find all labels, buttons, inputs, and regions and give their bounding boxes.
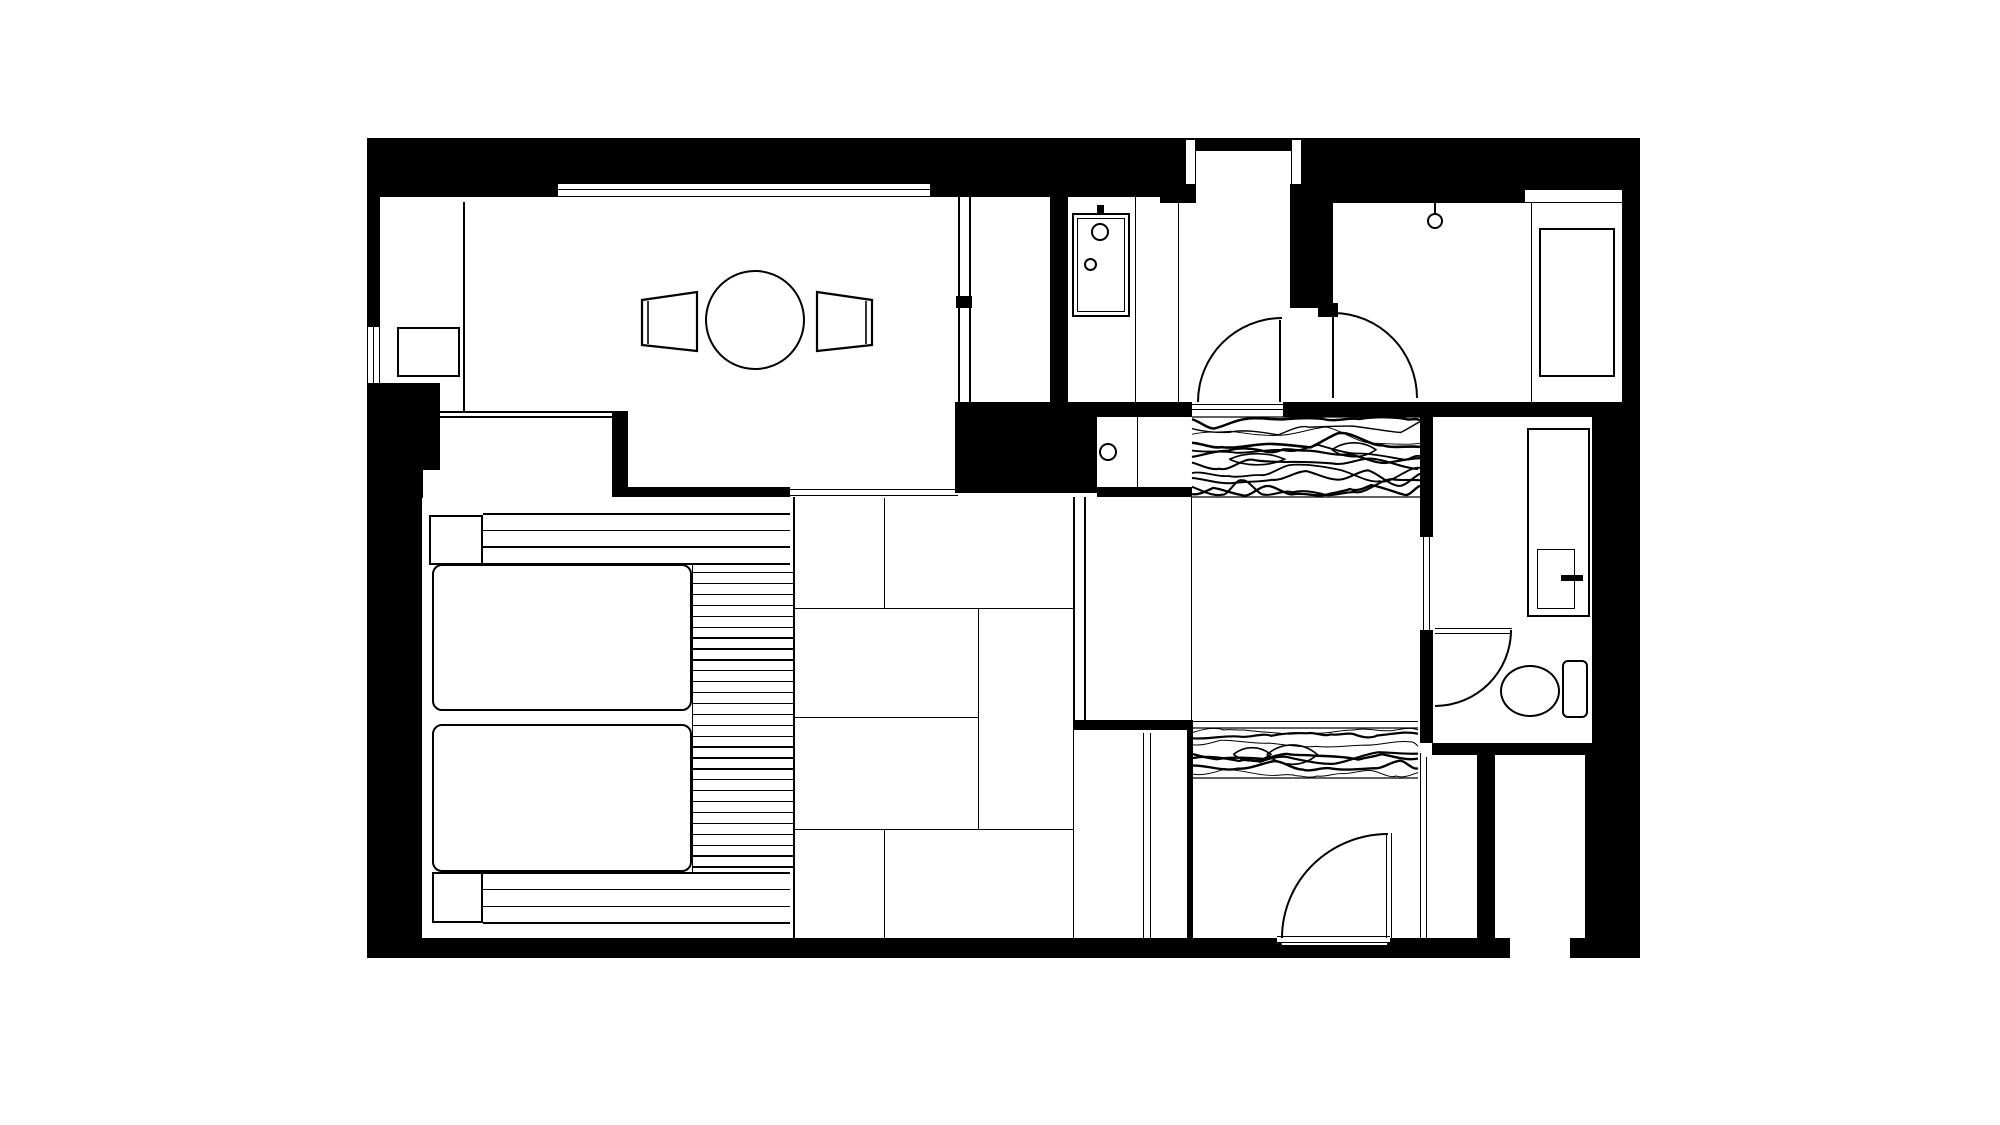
bar-below-sink	[1097, 487, 1192, 497]
tatami-track-b	[790, 495, 958, 496]
washroom-partition	[1178, 203, 1179, 402]
genkan-wood-upper-grain-7	[1192, 465, 1420, 482]
tatami-line-6	[884, 829, 885, 938]
entrance-jamb-left	[1185, 140, 1196, 184]
toilet-tank	[1562, 660, 1588, 718]
bed-platform-slats-right-3	[692, 605, 793, 606]
genkan-wood-lower-grain-4	[1193, 752, 1418, 764]
genkan-wood-upper-knot-1	[1332, 443, 1376, 457]
genkan-wood-lower-knot-1	[1233, 748, 1271, 761]
tatami-partition-b	[1084, 497, 1086, 730]
toilet-bottom-wall	[1432, 743, 1593, 755]
bed-platform-slats-right-2	[692, 594, 793, 595]
genkan-wood-upper-grain-4	[1192, 445, 1420, 460]
dining-table	[705, 270, 805, 370]
hall-wood-edge	[1193, 721, 1418, 722]
nightstand-1	[429, 515, 483, 565]
genkan-wood-lower-grain-6	[1193, 770, 1418, 777]
genkan-wood-lower-grain-0	[1193, 728, 1418, 734]
bed-platform-slats-right-6	[692, 637, 793, 638]
bed-platform-slats-right-9	[692, 670, 793, 671]
bed-platform-slats-top-1	[483, 530, 790, 532]
living-south-stub	[612, 411, 628, 497]
genkan-wood-upper-grain-10	[1192, 485, 1420, 496]
tatami-line-2	[793, 608, 1073, 609]
tatami-line-1	[884, 498, 885, 608]
bed-platform-slats-right-12	[692, 703, 793, 704]
bed-platform-slats-right-19	[692, 779, 793, 780]
living-closet-line-b	[969, 197, 971, 402]
bed-platform-slats-right-11	[692, 692, 793, 693]
entrance-doorway	[1196, 150, 1291, 184]
bed-platform-slats-right-27	[692, 866, 793, 867]
genkan-wood-upper-grain-6	[1192, 459, 1418, 470]
chair-right	[817, 292, 872, 351]
genkan-wood-lower-knot-0	[1267, 745, 1318, 764]
cabinet-divider	[1531, 203, 1532, 403]
shower-head-mount	[1097, 205, 1104, 214]
genkan-wood-upper-grain-2	[1192, 427, 1420, 444]
sink-niche-b	[1137, 417, 1192, 487]
floor-plan	[0, 0, 2000, 1125]
bar-above-sink	[1097, 402, 1192, 417]
mattress-2	[432, 724, 692, 872]
left-wall-lower	[367, 498, 422, 938]
left-wall-upper	[367, 138, 380, 327]
bed-platform-slats-right-5	[692, 627, 793, 628]
oshiire-door-a	[1143, 733, 1144, 938]
oshiire-left-line	[1073, 730, 1074, 938]
bottom-wall	[367, 938, 1640, 958]
bed-platform-slats-right-0	[692, 572, 793, 573]
nightstand-2	[432, 872, 483, 923]
bed-platform-slats-bottom-3	[483, 922, 790, 924]
genkan-wood-upper-grain-1	[1192, 422, 1420, 435]
entry-leaf-b	[1391, 833, 1392, 938]
room-door-swing	[1333, 312, 1418, 398]
right-wall-lower	[1585, 753, 1640, 943]
pocket-door-line-a	[1423, 537, 1424, 630]
top-wall-above-window	[558, 138, 930, 183]
tatami-line-5	[793, 829, 1073, 830]
genkan-wood-upper-grain-0	[1192, 417, 1420, 428]
tatami-partition-a	[1073, 497, 1075, 730]
genkan-wood-upper-grain-5	[1192, 449, 1420, 463]
bed-platform-slats-right-14	[692, 725, 793, 726]
bed-platform-slats-right-7	[692, 648, 793, 649]
bed-platform-slats-right-24	[692, 834, 793, 835]
hinge-dot-left	[1277, 942, 1282, 947]
living-closet-line-a	[958, 197, 960, 402]
wall-y402-right	[1283, 402, 1640, 417]
tatami-line-4	[793, 717, 978, 718]
top-wall-left	[367, 138, 558, 197]
window-top-midline	[558, 189, 930, 190]
bed-platform-slats-right-26	[692, 855, 793, 856]
washroom-door-swing	[1197, 317, 1282, 402]
bed-platform-slats-right-17	[692, 757, 793, 758]
genkan-wood-upper-grain-3	[1192, 433, 1420, 448]
hall-west-line	[1191, 497, 1192, 722]
bed-platform-slats-right-8	[692, 659, 793, 660]
tatami-line-3	[978, 608, 979, 829]
slat-column-edge	[692, 564, 693, 872]
wall-under-jamb	[1160, 182, 1196, 203]
oshiire-top-wall	[1073, 720, 1193, 730]
service-black-block	[955, 402, 1097, 493]
genkan-wood-lower-grain-1	[1193, 733, 1418, 739]
shower-glass-line	[1135, 197, 1136, 402]
top-wall-right2	[1525, 138, 1640, 190]
right-wall-upper	[1622, 190, 1640, 405]
hall-sink-drain	[1099, 443, 1117, 461]
toilet-bowl	[1500, 665, 1560, 717]
living-closet-wall	[1050, 197, 1068, 402]
bed-platform-slats-right-21	[692, 801, 793, 802]
top-wall-left2	[930, 138, 958, 197]
shower-head	[1091, 223, 1109, 241]
genkan-wood-upper-knot-0	[1229, 454, 1284, 465]
vanity-faucet	[1561, 575, 1583, 581]
pocket-door-line-b	[1429, 537, 1430, 630]
closet-cabinet	[1539, 228, 1615, 377]
bed-platform-slats-right-1	[692, 583, 793, 584]
genkan-track-b	[1192, 409, 1283, 410]
bed-platform-slats-right-4	[692, 616, 793, 617]
top-wall-mid	[958, 138, 1180, 197]
genkan-wood-lower-grain-5	[1193, 761, 1418, 771]
entrance-jamb-right	[1291, 140, 1302, 184]
entry-door-swing	[1281, 833, 1388, 938]
tatami-track-a	[790, 489, 958, 490]
window-left-midline	[373, 327, 374, 383]
bed-platform-slats-top-2	[483, 546, 790, 548]
bed-platform-slats-right-13	[692, 714, 793, 715]
shaft-inner-line	[1426, 757, 1427, 938]
toilet-pocket-door	[1420, 537, 1433, 630]
bed-platform-slats-top-0	[483, 513, 790, 515]
living-alcove-partition	[463, 202, 465, 412]
right-wall-mid	[1592, 405, 1640, 753]
living-bed-divider-b	[440, 416, 612, 418]
bed-platform-slats-right-25	[692, 845, 793, 846]
sill-line-b	[1277, 942, 1390, 943]
genkan-wood-lower-grain-2	[1193, 740, 1418, 747]
shaft-divider	[1477, 753, 1495, 943]
living-bed-divider-a	[440, 411, 612, 413]
mattress-1	[432, 564, 692, 711]
bed-platform-slats-right-22	[692, 812, 793, 813]
oshiire-right-wall	[1187, 730, 1193, 938]
genkan-wood-upper-grain-8	[1192, 470, 1420, 486]
genkan-track-a	[1192, 404, 1283, 405]
chair-left	[642, 292, 697, 351]
top-wall-right	[1302, 138, 1525, 203]
shower-control	[1084, 258, 1097, 271]
bed-platform-slats-right-16	[692, 746, 793, 747]
bed-platform-slats-right-20	[692, 790, 793, 791]
hinge-dot-right	[1387, 942, 1392, 947]
tv-board	[397, 327, 460, 377]
bed-platform-slats-right-18	[692, 768, 793, 769]
genkan-wood-upper-grain-9	[1192, 479, 1420, 495]
oshiire-door-b	[1150, 733, 1151, 938]
genkan-wood-lower-grain-3	[1193, 754, 1418, 760]
bottom-wall-gap	[1510, 938, 1570, 958]
cabinet-top-strip	[1525, 190, 1622, 203]
bed-platform-slats-right-15	[692, 736, 793, 737]
bed-platform-slats-right-23	[692, 823, 793, 824]
bed-platform-slats-bottom-0	[483, 872, 790, 874]
ceiling-light	[1427, 213, 1443, 229]
bedroom-north-wall	[628, 487, 790, 497]
bedroom-tatami-edge	[793, 497, 795, 938]
bed-platform-slats-bottom-1	[483, 889, 790, 891]
bed-platform-slats-bottom-2	[483, 906, 790, 908]
bed-platform-slats-right-10	[692, 681, 793, 682]
vestibule-shaft-line	[1420, 753, 1421, 938]
